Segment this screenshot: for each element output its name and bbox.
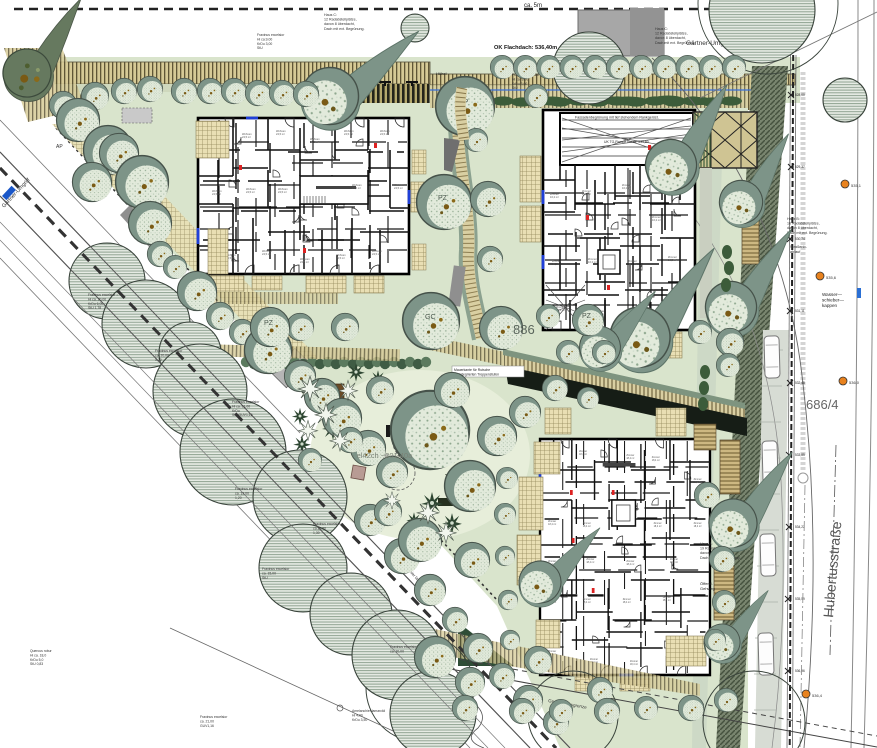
svg-text:Höhel: Höhel (436, 71, 447, 76)
svg-text:24,5 m²: 24,5 m² (246, 190, 255, 194)
svg-text:Fraxinus excelsior: Fraxinus excelsior (313, 522, 341, 526)
svg-text:Hi ca.9,00: Hi ca.9,00 (257, 37, 272, 41)
svg-text:ablauf: ablauf (790, 250, 801, 254)
svg-text:536,4: 536,4 (812, 693, 823, 698)
svg-text:ca. 21,00: ca. 21,00 (200, 719, 214, 723)
svg-text:535,1: 535,1 (851, 183, 862, 188)
svg-text:davon 8 überdacht,: davon 8 überdacht, (655, 36, 686, 40)
svg-text:Hi ca. 21,00: Hi ca. 21,00 (232, 404, 250, 408)
svg-text:16,2 m²: 16,2 m² (622, 186, 631, 190)
svg-text:StU: StU (512, 86, 518, 90)
svg-text:24,5 m²: 24,5 m² (372, 252, 381, 256)
svg-text:18,4 m²: 18,4 m² (583, 525, 591, 528)
svg-text:24,5 m²: 24,5 m² (394, 186, 403, 190)
svg-text:24,5 m²: 24,5 m² (380, 132, 389, 136)
svg-text:Wasser—: Wasser— (822, 292, 842, 297)
svg-text:OK Flachdach: 536,40m: OK Flachdach: 536,40m (494, 45, 557, 51)
svg-text:18,4 m²: 18,4 m² (670, 561, 678, 564)
svg-text:1,20: 1,20 (155, 358, 162, 362)
svg-text:GC: GC (425, 314, 436, 321)
svg-text:Fraxinus excelsior ○: Fraxinus excelsior ○ (88, 293, 118, 297)
svg-text:StU 0,83: StU 0,83 (30, 662, 43, 666)
svg-text:- el42ch ~201,40a: - el42ch ~201,40a (352, 451, 413, 460)
svg-text:Mauerkante für Rutsche: Mauerkante für Rutsche (454, 368, 490, 372)
svg-text:18,4 m²: 18,4 m² (586, 561, 594, 564)
svg-text:Quercus robur: Quercus robur (30, 649, 53, 653)
svg-text:Fraxinus excelsior: Fraxinus excelsior (232, 400, 260, 404)
svg-text:24,5 m²: 24,5 m² (300, 260, 309, 264)
svg-text:KrDu 3,00: KrDu 3,00 (257, 42, 272, 46)
svg-text:Haus A:: Haus A: (700, 542, 713, 546)
svg-text:davon 8 überdacht,: davon 8 überdacht, (324, 22, 355, 26)
svg-text:16,2 m²: 16,2 m² (628, 262, 637, 266)
svg-text:ca. 19,00: ca. 19,00 (235, 491, 249, 495)
svg-text:kappen: kappen (822, 303, 838, 308)
svg-text:PZ: PZ (438, 195, 448, 202)
svg-text:536,0: 536,0 (849, 380, 860, 385)
svg-text:18,4 m²: 18,4 m² (626, 563, 634, 566)
svg-text:KrDu 3,50: KrDu 3,50 (352, 718, 367, 722)
svg-text:ca. 5m: ca. 5m (524, 3, 542, 9)
svg-text:1,30: 1,30 (313, 531, 320, 535)
svg-text:Fraxinus excelsior: Fraxinus excelsior (155, 349, 183, 353)
svg-text:Fraxinus excelsior: Fraxinus excelsior (200, 715, 228, 719)
svg-text:Haus C:: Haus C: (655, 27, 668, 31)
svg-text:530,74: 530,74 (795, 237, 805, 241)
svg-text:KrDu 3,00: KrDu 3,00 (512, 82, 527, 86)
svg-text:18,4 m²: 18,4 m² (652, 459, 660, 462)
svg-text:18,4 m²: 18,4 m² (579, 453, 587, 456)
svg-text:Fraxinus excelsior: Fraxinus excelsior (390, 645, 418, 649)
svg-text:18,4 m²: 18,4 m² (626, 457, 634, 460)
svg-text:16 Radabstellplätze,: 16 Radabstellplätze, (787, 222, 820, 226)
svg-text:24,5 m²: 24,5 m² (212, 192, 221, 196)
svg-text:Fraxinus excelsior: Fraxinus excelsior (235, 487, 263, 491)
svg-text:1,20: 1,20 (235, 496, 242, 500)
svg-text:18,4 m²: 18,4 m² (663, 599, 671, 602)
svg-text:12 Radabstellplätze,: 12 Radabstellplätze, (655, 32, 688, 36)
svg-text:528,00: 528,00 (795, 93, 805, 97)
svg-text:535,59: 535,59 (795, 597, 805, 601)
svg-text:ca. 20,00: ca. 20,00 (390, 649, 404, 653)
svg-text:Amelanchier lamarckii: Amelanchier lamarckii (352, 709, 385, 713)
svg-text:StU 1,78: StU 1,78 (88, 306, 101, 310)
svg-text:18,4 m²: 18,4 m² (630, 663, 638, 666)
svg-text:Hi 4,00: Hi 4,00 (352, 713, 363, 717)
svg-text:18,4 m²: 18,4 m² (654, 525, 662, 528)
svg-text:Dach mit ext. Begrünung.: Dach mit ext. Begrünung. (324, 27, 365, 31)
svg-text:24,5 m²: 24,5 m² (262, 252, 271, 256)
svg-text:535,6: 535,6 (826, 275, 837, 280)
svg-text:Hi ca. 18,0: Hi ca. 18,0 (30, 653, 46, 657)
svg-text:16,2 m²: 16,2 m² (668, 258, 677, 262)
svg-text:Dach mit ext. Begrünung.: Dach mit ext. Begrünung. (655, 41, 696, 45)
svg-text:16,2 m²: 16,2 m² (582, 192, 591, 196)
svg-text:PZ: PZ (582, 313, 592, 320)
svg-text:16,2 m²: 16,2 m² (552, 262, 561, 266)
svg-text:ca.19,00: ca.19,00 (313, 526, 326, 530)
svg-text:24,5 m²: 24,5 m² (344, 132, 353, 136)
svg-text:StU: StU (262, 576, 268, 580)
svg-text:Hi ca. 20,00: Hi ca. 20,00 (88, 297, 106, 301)
svg-text:24,5 m²: 24,5 m² (278, 190, 287, 194)
svg-text:16,2 m²: 16,2 m² (588, 260, 597, 264)
svg-text:18,4 m²: 18,4 m² (623, 601, 631, 604)
svg-text:Fassadenbegrünung mit tief ste: Fassadenbegrünung mit tief stehendem Ran… (575, 116, 659, 120)
svg-text:GUV1,16: GUV1,16 (200, 724, 214, 728)
svg-text:schieber—: schieber— (822, 298, 844, 303)
svg-text:PZ: PZ (264, 320, 274, 327)
svg-text:18,4 m²: 18,4 m² (694, 525, 702, 528)
svg-text:ca. 15,00: ca. 15,00 (262, 571, 276, 575)
svg-text:StU: StU (257, 46, 263, 50)
svg-text:24,5 m²: 24,5 m² (352, 186, 361, 190)
svg-text:529,37: 529,37 (795, 165, 805, 169)
svg-text:531,11: 531,11 (795, 309, 805, 313)
svg-text:18,4 m²: 18,4 m² (583, 601, 591, 604)
svg-text:16,2 m²: 16,2 m² (550, 195, 559, 199)
svg-text:Fraxinus excelsior: Fraxinus excelsior (262, 567, 290, 571)
svg-text:Straßenb-: Straßenb- (790, 245, 808, 249)
svg-text:24,5 m²: 24,5 m² (276, 132, 285, 136)
svg-text:24,5 m²: 24,5 m² (242, 135, 251, 139)
svg-text:533,85: 533,85 (795, 453, 805, 457)
svg-text:Haus C:: Haus C: (324, 13, 337, 17)
svg-text:Fraxinus excelsior: Fraxinus excelsior (257, 33, 285, 37)
svg-text:24,5 m²: 24,5 m² (310, 140, 319, 144)
svg-text:18,4 m²: 18,4 m² (548, 523, 556, 526)
svg-text:KrDu: KrDu (232, 409, 240, 413)
svg-text:536,96: 536,96 (795, 669, 805, 673)
svg-text:KrDu 6,00: KrDu 6,00 (88, 302, 103, 306)
svg-text:16,2 m²: 16,2 m² (652, 218, 661, 222)
svg-text:ca. 20,00: ca. 20,00 (155, 353, 169, 357)
svg-text:Gehweg: Gehweg (700, 586, 715, 591)
svg-text:686/4: 686/4 (806, 397, 839, 412)
svg-text:532,48: 532,48 (795, 381, 805, 385)
svg-text:24,5 m²: 24,5 m² (336, 256, 345, 260)
svg-text:AP: AP (56, 144, 63, 150)
svg-text:KrDu 5,0: KrDu 5,0 (30, 658, 43, 662)
svg-text:StU GUV1,16: StU GUV1,16 (232, 413, 253, 417)
svg-text:Dach mit ext. Begrünung.: Dach mit ext. Begrünung. (787, 231, 828, 235)
svg-text:886: 886 (513, 322, 535, 337)
svg-text:534,22: 534,22 (795, 525, 805, 529)
svg-text:UK TG-Rampe konstr. 533,80: UK TG-Rampe konstr. 533,80 (604, 140, 649, 144)
svg-text:Haus B:: Haus B: (787, 217, 800, 221)
svg-text:12 Radabstellplätze,: 12 Radabstellplätze, (324, 18, 357, 22)
